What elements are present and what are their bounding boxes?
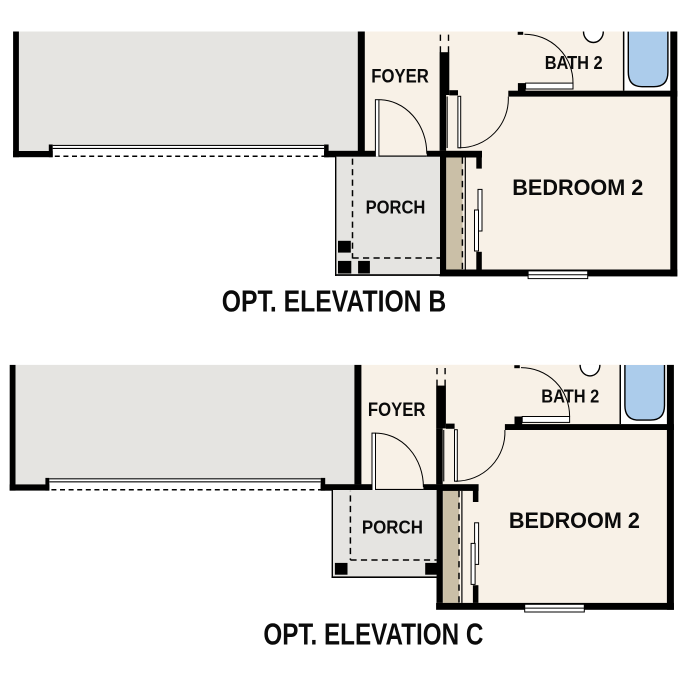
svg-text:PORCH: PORCH (366, 198, 426, 218)
svg-text:OPT. ELEVATION B: OPT. ELEVATION B (222, 283, 446, 318)
svg-text:PORCH: PORCH (362, 517, 423, 537)
svg-text:OPT. ELEVATION C: OPT. ELEVATION C (263, 617, 483, 652)
